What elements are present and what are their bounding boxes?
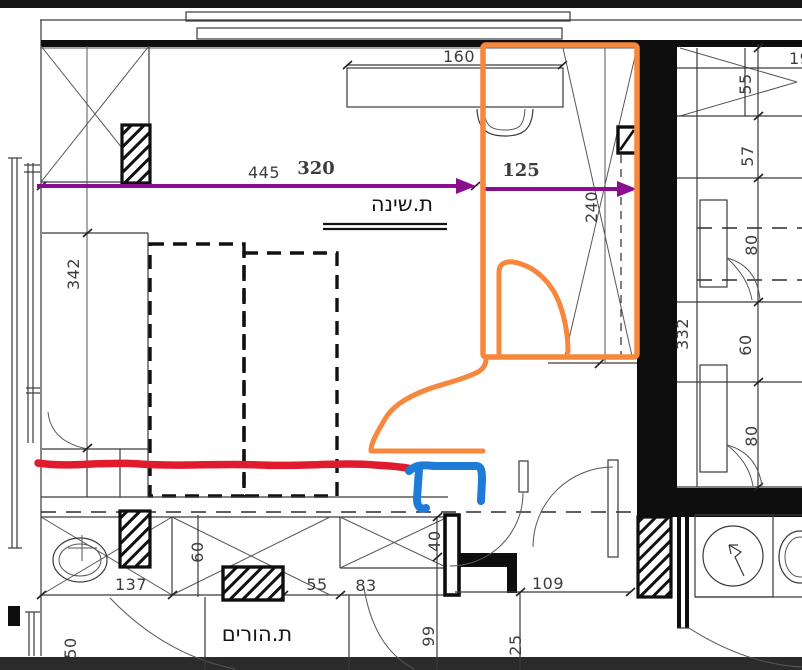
shower-symbol-icon	[703, 526, 763, 586]
top-border-bar	[0, 0, 802, 8]
dim-25: 25	[506, 634, 525, 655]
dim-160: 160	[443, 47, 475, 66]
hatched-column-bath	[638, 517, 671, 597]
annotation-125: 125	[502, 160, 540, 181]
dim-342: 342	[64, 258, 83, 290]
dim-55-bottom: 55	[306, 575, 327, 594]
right-dividing-wall	[637, 40, 677, 517]
purple-arrowhead-right	[617, 181, 637, 197]
dim-19: 19	[789, 49, 802, 68]
bedroom-name: ת.שינה	[371, 192, 433, 216]
desk	[343, 61, 567, 136]
dim-137: 137	[115, 575, 147, 594]
orange-annotation	[371, 45, 637, 451]
dim-99: 99	[419, 625, 438, 646]
dim-right-80-upper: 80	[742, 234, 761, 255]
closet-top-left	[41, 46, 149, 497]
hatched-column-band-left	[120, 511, 150, 567]
dim-83: 83	[355, 576, 376, 595]
annotation-320: 320	[297, 158, 335, 179]
bottom-right-wall	[655, 488, 802, 517]
dim-40: 40	[425, 530, 444, 551]
door-arc-mid	[533, 467, 613, 547]
dim-240: 240	[582, 191, 601, 223]
dim-right-57: 57	[738, 145, 757, 166]
red-marker-line	[38, 463, 412, 469]
toilet-icon	[779, 531, 802, 583]
hatched-column-top-left	[122, 125, 150, 183]
dim-50: 50	[61, 637, 80, 658]
orange-curve	[371, 359, 486, 451]
hatched-column-band-mid	[223, 567, 283, 600]
dim-109: 109	[532, 574, 564, 593]
purple-arrowhead-left	[456, 178, 476, 194]
doors-bottom	[110, 460, 618, 670]
right-door-arc-lower	[727, 445, 762, 486]
left-window	[8, 158, 40, 548]
bath-niche-walls	[445, 515, 517, 595]
bedroom-label: ת.שינה	[323, 192, 447, 229]
right-door-arc-upper	[727, 258, 760, 300]
parents-room-name: ת.הורים	[222, 622, 292, 646]
door-arc-parents-2	[364, 588, 414, 669]
bottom-border-bar	[0, 657, 802, 670]
floor-plan-svg: 445 160 342 240 ת.שינה 19 55 57	[0, 0, 802, 670]
dim-right-80-lower: 80	[742, 425, 761, 446]
dim-right-60: 60	[736, 334, 755, 355]
sink	[53, 535, 107, 582]
right-room: 19 55 57 80 332 60 80	[673, 44, 802, 491]
blue-marker-line	[409, 465, 482, 508]
orange-door-sketch	[499, 262, 568, 353]
bed-dashed-outline	[150, 244, 337, 496]
closet-door-arc	[48, 412, 88, 449]
hatched-column-right-small	[618, 127, 637, 153]
dim-445: 445	[248, 163, 280, 182]
bath-corner	[638, 515, 802, 667]
dim-60-bottom: 60	[188, 541, 207, 562]
door-leaf-mid	[608, 460, 618, 557]
floor-plan-screenshot: 445 160 342 240 ת.שינה 19 55 57	[0, 0, 802, 670]
dim-right-332: 332	[673, 318, 692, 350]
dim-right-55: 55	[736, 73, 755, 94]
